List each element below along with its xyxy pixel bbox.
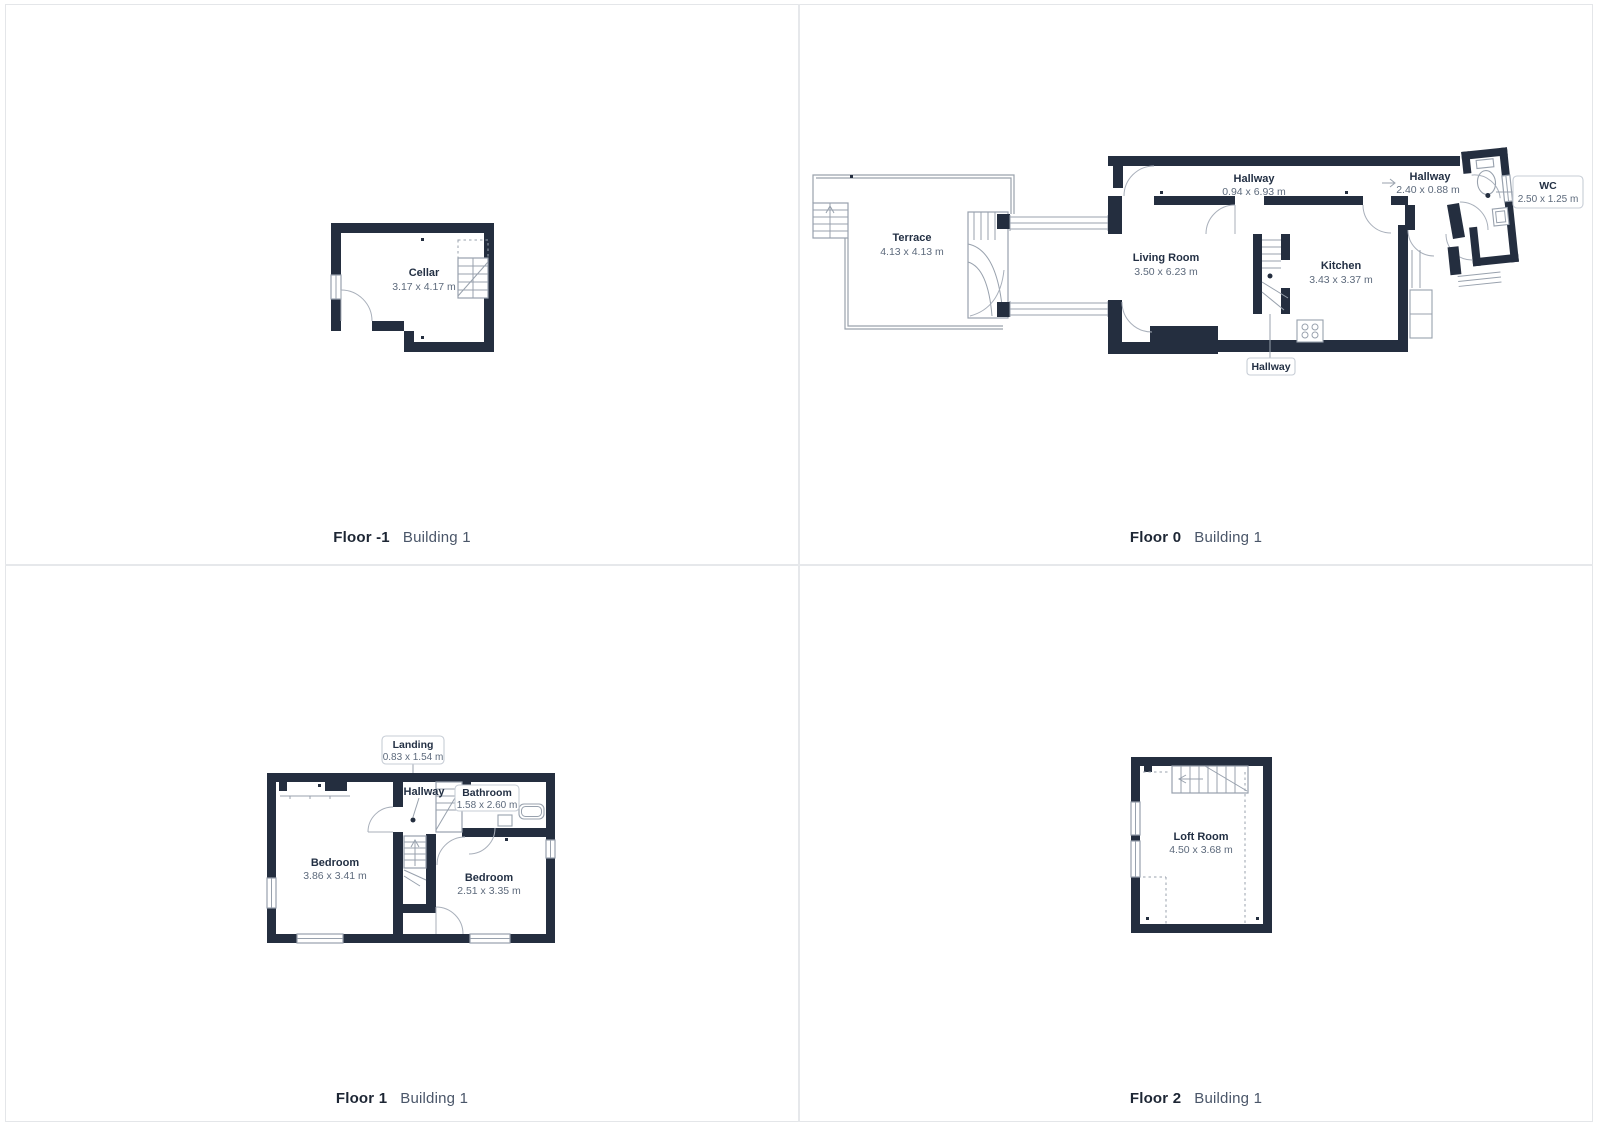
bathtub-icon (519, 804, 544, 819)
floor-plan-floor-0: Terrace 4.13 x 4.13 m Hallway 0.94 x 6.9… (799, 4, 1593, 565)
floor-plan-floor--1: Cellar 3.17 x 4.17 m (5, 4, 799, 565)
wall-marker (421, 238, 424, 241)
floor-plan-panel-floor--1[interactable]: Cellar 3.17 x 4.17 m Floor -1Building 1 (5, 4, 799, 565)
quadrant-divider-horizontal (5, 564, 1593, 566)
room-dims-hallway-small: 2.40 x 0.88 m (1396, 184, 1460, 196)
room-dims-loft: 4.50 x 3.68 m (1169, 844, 1233, 856)
floor-caption: Floor 0Building 1 (799, 529, 1593, 546)
building-label: Building 1 (400, 1090, 468, 1107)
terrace-stairs (813, 203, 848, 238)
floor-plan-floor-2: Loft Room 4.50 x 3.68 m (799, 565, 1593, 1122)
building-label: Building 1 (1194, 1090, 1262, 1107)
cellar-door-arc (341, 290, 372, 321)
sink-icon (498, 815, 512, 826)
loft-stairs (1143, 766, 1248, 793)
wall-marker (1345, 191, 1348, 194)
room-label-loft: Loft Room (1174, 831, 1229, 843)
sink-icon (1492, 208, 1509, 226)
room-label-cellar: Cellar (409, 267, 440, 279)
floor-caption: Floor 2Building 1 (799, 1090, 1593, 1107)
wc-room (1461, 147, 1519, 266)
room-label-living-room: Living Room (1133, 252, 1200, 264)
cellar-window (331, 275, 341, 299)
building-label: Building 1 (1194, 529, 1262, 546)
room-dims-bathroom: 1.58 x 2.60 m (457, 800, 518, 811)
room-dims-living-room: 3.50 x 6.23 m (1134, 266, 1198, 278)
room-label-wc: WC (1539, 180, 1557, 192)
quadrant-divider-vertical (798, 4, 800, 1122)
room-label-terrace: Terrace (893, 232, 932, 244)
floor-plan-panel-floor-1[interactable]: Landing 0.83 x 1.54 m (5, 565, 799, 1122)
floor-plan-panel-floor-2[interactable]: Loft Room 4.50 x 3.68 m Floor 2Building … (799, 565, 1593, 1122)
room-dims-bedroom-left: 3.86 x 3.41 m (303, 870, 367, 882)
room-dims-hallway-long: 0.94 x 6.93 m (1222, 186, 1286, 198)
room-dims-kitchen: 3.43 x 3.37 m (1309, 274, 1373, 286)
wall-marker (1256, 917, 1259, 920)
cellar-stairs (458, 240, 488, 298)
wall-marker (850, 175, 853, 178)
room-dims-cellar: 3.17 x 4.17 m (392, 281, 456, 293)
toilet-icon (1475, 159, 1497, 199)
window-band-bottom (1010, 301, 1108, 317)
room-label-bathroom: Bathroom (462, 787, 512, 799)
room-label-hallway-tag: Hallway (1251, 361, 1290, 373)
wardrobe-line (280, 796, 350, 799)
wall-marker (318, 784, 321, 787)
room-tag-bathroom: Bathroom 1.58 x 2.60 m (455, 785, 519, 811)
room-label-hallway-small: Hallway (1410, 171, 1452, 183)
floor-caption-floor-label: Floor 1 (336, 1090, 387, 1107)
floor-plan-floor-1: Landing 0.83 x 1.54 m (5, 565, 799, 1122)
wall-marker (421, 336, 424, 339)
spiral-stairs (968, 212, 1010, 318)
wall-marker (505, 838, 508, 841)
floor-caption-floor-label: Floor 0 (1130, 529, 1181, 546)
room-label-landing: Landing (393, 739, 434, 751)
room-dims-landing: 0.83 x 1.54 m (383, 752, 444, 763)
room-label-bedroom-right: Bedroom (465, 872, 514, 884)
room-dims-terrace: 4.13 x 4.13 m (880, 246, 944, 258)
hallway-arrow-icon (1382, 179, 1395, 187)
floor-caption: Floor -1Building 1 (5, 529, 799, 546)
floor-plan-panel-floor-0[interactable]: Terrace 4.13 x 4.13 m Hallway 0.94 x 6.9… (799, 4, 1593, 565)
building-label: Building 1 (403, 529, 471, 546)
stove-icon (1297, 320, 1323, 342)
floor1-stairs-up (404, 836, 426, 886)
floor-caption: Floor 1Building 1 (5, 1090, 799, 1107)
room-dims-bedroom-right: 2.51 x 3.35 m (457, 885, 521, 897)
floor-caption-floor-label: Floor 2 (1130, 1090, 1181, 1107)
room-label-hallway1: Hallway (404, 786, 446, 798)
room-label-kitchen: Kitchen (1321, 260, 1362, 272)
room-label-bedroom-left: Bedroom (311, 857, 360, 869)
wall-marker (1160, 191, 1163, 194)
kitchen-window-right (1410, 250, 1432, 338)
room-tag-landing: Landing 0.83 x 1.54 m (382, 736, 444, 774)
window-band-top (1010, 215, 1108, 231)
room-dims-wc: 2.50 x 1.25 m (1518, 194, 1579, 205)
wall-marker (1146, 917, 1149, 920)
room-label-hallway-long: Hallway (1234, 173, 1276, 185)
room-tag-hallway0: Hallway (1247, 358, 1295, 375)
floorplan-viewer: Cellar 3.17 x 4.17 m Floor -1Building 1 (0, 0, 1600, 1131)
floor-caption-floor-label: Floor -1 (333, 529, 390, 546)
